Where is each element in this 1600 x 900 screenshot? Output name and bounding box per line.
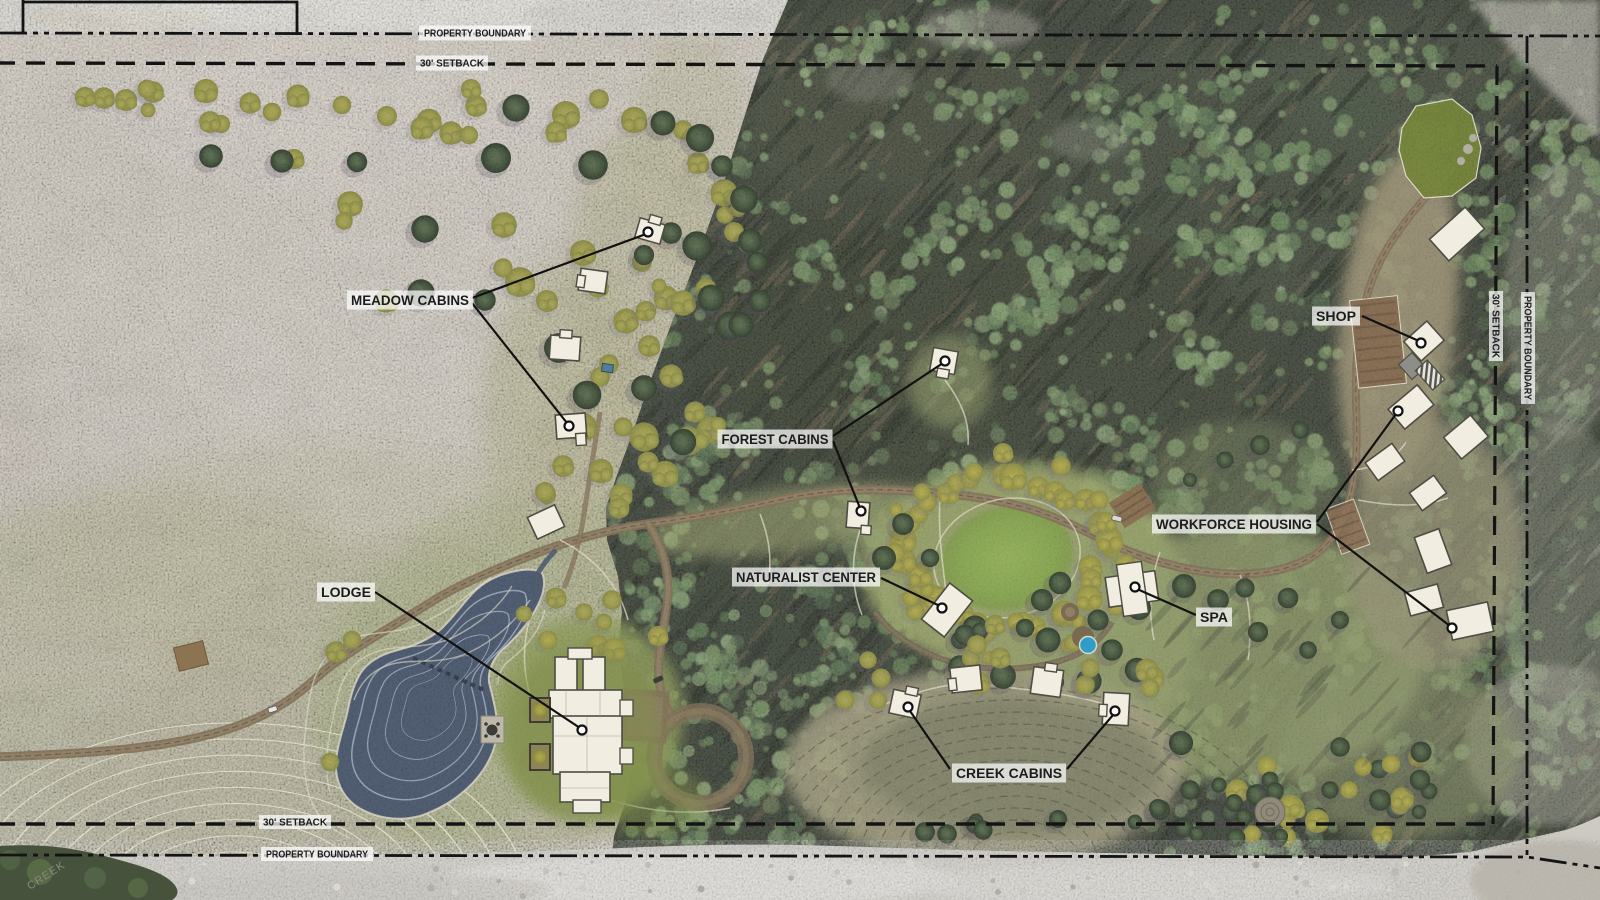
svg-text:PROPERTY BOUNDARY: PROPERTY BOUNDARY bbox=[266, 850, 368, 861]
svg-text:WORKFORCE HOUSING: WORKFORCE HOUSING bbox=[1156, 517, 1312, 532]
svg-text:NATURALIST CENTER: NATURALIST CENTER bbox=[736, 570, 876, 585]
svg-text:LODGE: LODGE bbox=[321, 585, 371, 600]
svg-text:PROPERTY BOUNDARY: PROPERTY BOUNDARY bbox=[1521, 296, 1532, 400]
svg-text:30' SETBACK: 30' SETBACK bbox=[1489, 294, 1500, 359]
svg-text:SHOP: SHOP bbox=[1316, 309, 1356, 324]
svg-text:PROPERTY BOUNDARY: PROPERTY BOUNDARY bbox=[424, 29, 526, 40]
svg-text:30' SETBACK: 30' SETBACK bbox=[420, 59, 485, 70]
svg-text:SPA: SPA bbox=[1200, 610, 1228, 625]
svg-text:CREEK CABINS: CREEK CABINS bbox=[956, 766, 1062, 781]
svg-text:MEADOW CABINS: MEADOW CABINS bbox=[351, 293, 469, 308]
svg-text:30' SETBACK: 30' SETBACK bbox=[263, 818, 328, 829]
svg-text:FOREST CABINS: FOREST CABINS bbox=[722, 432, 829, 447]
